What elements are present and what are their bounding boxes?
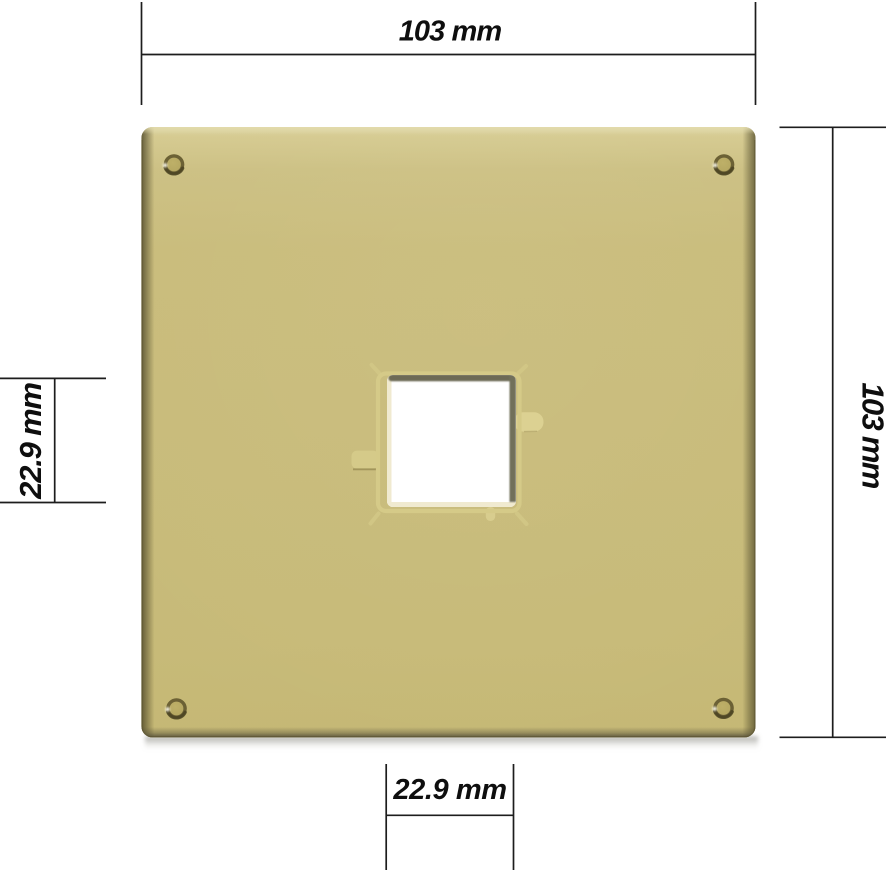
svg-text:103 mm: 103 mm bbox=[399, 16, 502, 48]
svg-text:103 mm: 103 mm bbox=[856, 382, 886, 488]
svg-text:22.9 mm: 22.9 mm bbox=[392, 774, 506, 806]
svg-text:22.9 mm: 22.9 mm bbox=[13, 383, 48, 500]
